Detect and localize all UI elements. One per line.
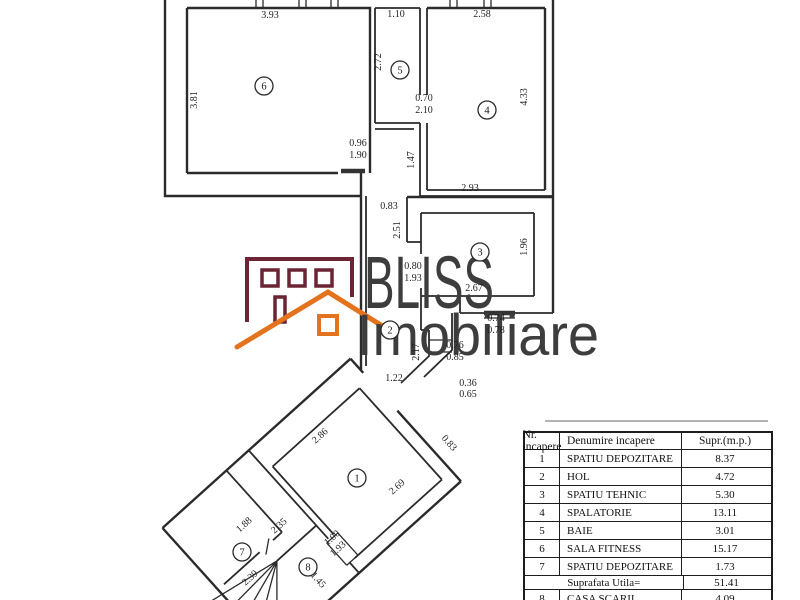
room-marker-6: 6: [255, 77, 273, 95]
svg-text:5: 5: [397, 66, 402, 77]
svg-text:3: 3: [477, 248, 482, 259]
table-row: 8CASA SCARII4.09: [525, 590, 771, 600]
cell-nr: 7: [525, 558, 560, 575]
cell-name: SPATIU TEHNIC: [560, 486, 682, 503]
svg-text:1: 1: [354, 474, 359, 485]
dimension-label: 2.93: [461, 183, 479, 194]
dimension-label: 2.17: [411, 343, 422, 361]
cell-nr: 4: [525, 504, 560, 521]
cell-area: 5.30: [682, 486, 768, 503]
table-row: Nr. incapereDenumire incapereSupr.(m.p.): [525, 433, 771, 450]
dimension-label: 2.67: [465, 283, 483, 294]
cell-area: 4.09: [682, 590, 768, 600]
cell-name: HOL: [560, 468, 682, 485]
table-row: 1SPATIU DEPOZITARE8.37: [525, 450, 771, 468]
cell-nr: 5: [525, 522, 560, 539]
dimension-label: 0.76: [446, 340, 464, 351]
table-row: Suprafata Utila=51.41: [525, 576, 771, 590]
cell-name: SPATIU DEPOZITARE: [560, 558, 682, 575]
room-marker-7: 7: [233, 543, 251, 561]
room-marker-3: 3: [471, 243, 489, 261]
dimension-label: 3.81: [189, 91, 200, 109]
dimension-label: 1.93: [404, 273, 422, 284]
table-row: 7SPATIU DEPOZITARE1.73: [525, 558, 771, 576]
dimension-label: 2.35: [269, 516, 289, 536]
floorplan-scan: BLISS Imobiliare 3.931.102.583.812.724.3…: [0, 0, 800, 600]
cell-area: 3.01: [682, 522, 768, 539]
room-marker-2: 2: [381, 321, 399, 339]
svg-text:6: 6: [261, 82, 266, 93]
cell-name: BAIE: [560, 522, 682, 539]
dimension-label: 0.65: [459, 389, 477, 400]
svg-text:7: 7: [239, 548, 244, 559]
table-row: 6SALA FITNESS15.17: [525, 540, 771, 558]
col-header-nr: Nr. incapere: [525, 433, 560, 449]
cell-area: 13.11: [682, 504, 768, 521]
total-value: 51.41: [684, 576, 770, 589]
table-row: 5BAIE3.01: [525, 522, 771, 540]
cell-area: 1.73: [682, 558, 768, 575]
dimension-label: 2.58: [473, 9, 491, 20]
cell-nr: 1: [525, 450, 560, 467]
col-header-name: Denumire incapere: [560, 433, 682, 449]
dimension-label: 1.96: [519, 238, 530, 256]
cell-name: SPATIU DEPOZITARE: [560, 450, 682, 467]
cell-name: CASA SCARII: [560, 590, 682, 600]
dimension-label: 0.36: [459, 378, 477, 389]
room-marker-1: 1: [348, 469, 366, 487]
dimension-label: 0.83: [380, 201, 398, 212]
room-marker-4: 4: [478, 101, 496, 119]
dimension-label: 1.90: [349, 150, 367, 161]
dimension-label: 0.78: [487, 325, 505, 336]
dimension-label: 1.88: [234, 515, 254, 535]
table-row: 4SPALATORIE13.11: [525, 504, 771, 522]
room-marker-8: 8: [299, 558, 317, 576]
table-row: 3SPATIU TEHNIC5.30: [525, 486, 771, 504]
room-4-laundry-walls: [420, 0, 553, 196]
total-label: Suprafata Utila=: [525, 576, 684, 589]
cell-area: 8.37: [682, 450, 768, 467]
dimension-label: 2.51: [392, 221, 403, 239]
stair-fan: [207, 550, 317, 600]
dimension-label: 2.39: [240, 568, 260, 588]
room-marker-5: 5: [391, 61, 409, 79]
dimension-label: 1.47: [406, 151, 417, 169]
dimension-label: 4.33: [519, 88, 530, 106]
cell-area: 4.72: [682, 468, 768, 485]
cell-area: 15.17: [682, 540, 768, 557]
cell-nr: 6: [525, 540, 560, 557]
room-6-fitness-walls: [187, 0, 370, 173]
cell-name: SPALATORIE: [560, 504, 682, 521]
dimension-label: 1.10: [387, 9, 405, 20]
dimension-label: 3.93: [261, 10, 279, 21]
dimension-label: 0.85: [446, 352, 464, 363]
cell-nr: 2: [525, 468, 560, 485]
door-room7: [259, 539, 275, 555]
dimension-label: 0.96: [349, 138, 367, 149]
dimension-label: 0.83: [439, 433, 459, 453]
dimension-label: 0.74: [487, 313, 505, 324]
dimension-label: 0.70: [415, 93, 433, 104]
dimension-label: 2.69: [387, 477, 407, 497]
table-row: 2HOL4.72: [525, 468, 771, 486]
svg-text:8: 8: [305, 563, 310, 574]
dimension-label: 2.10: [415, 105, 433, 116]
col-header-area: Supr.(m.p.): [682, 433, 768, 449]
cell-nr: 3: [525, 486, 560, 503]
area-table: Nr. incapereDenumire incapereSupr.(m.p.)…: [523, 431, 773, 600]
cell-nr: 8: [525, 590, 560, 600]
svg-text:4: 4: [484, 106, 490, 117]
svg-text:2: 2: [387, 326, 392, 337]
cell-name: SALA FITNESS: [560, 540, 682, 557]
dimension-label: 2.72: [373, 53, 384, 71]
dimension-label: 1.22: [385, 373, 403, 384]
dimension-label: 0.80: [404, 261, 422, 272]
